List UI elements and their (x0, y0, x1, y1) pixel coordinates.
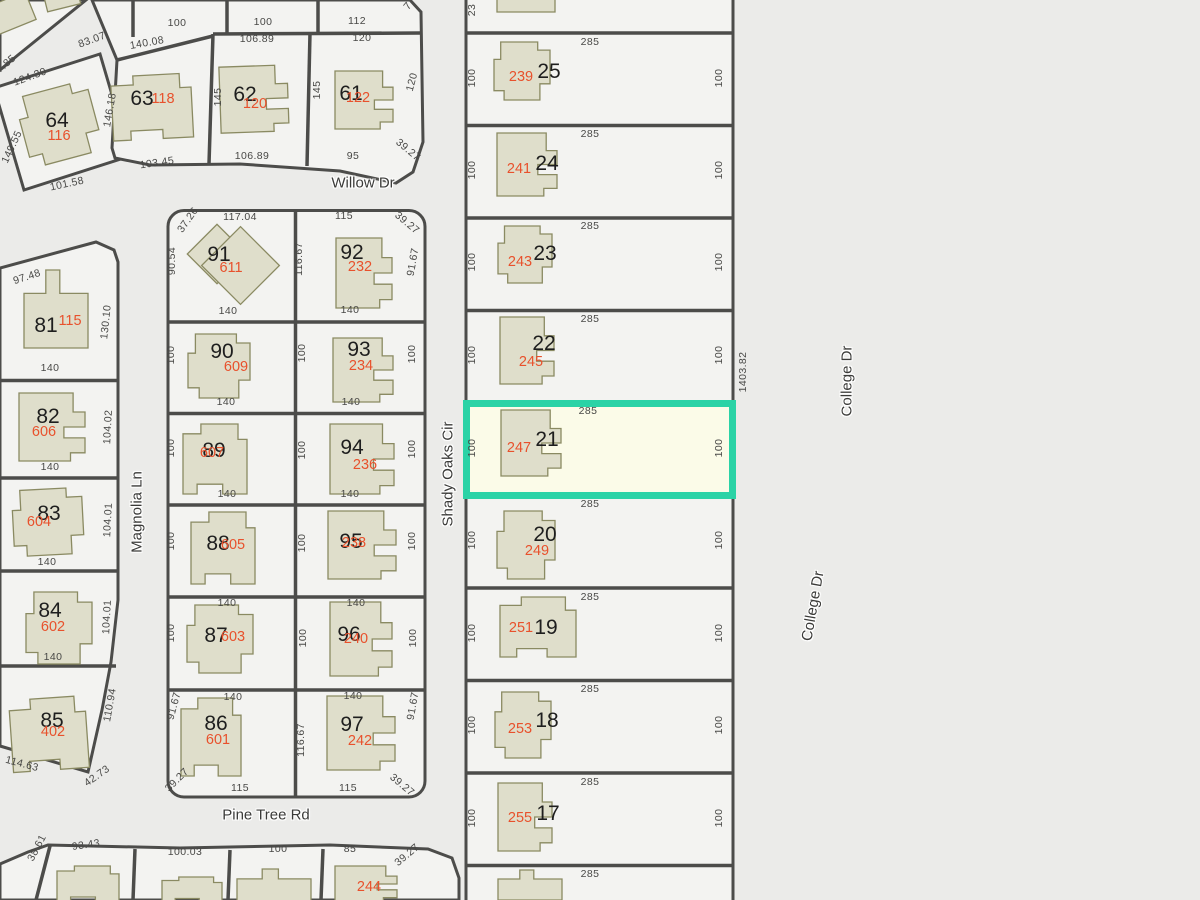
lot-line (213, 33, 421, 34)
building-south-2 (162, 877, 222, 900)
building-89 (183, 424, 247, 494)
building-south-1 (57, 866, 119, 900)
building-88 (191, 512, 255, 584)
parcel-map-svg (0, 0, 1200, 900)
building-19 (500, 597, 576, 657)
lot-line (321, 849, 323, 900)
building-top-partial (497, 0, 555, 12)
lot-line (133, 849, 135, 900)
parcel-map-canvas[interactable]: Willow DrMagnolia LnShady Oaks CirPine T… (0, 0, 1200, 900)
lot-line (228, 850, 230, 900)
building-86 (181, 698, 241, 776)
